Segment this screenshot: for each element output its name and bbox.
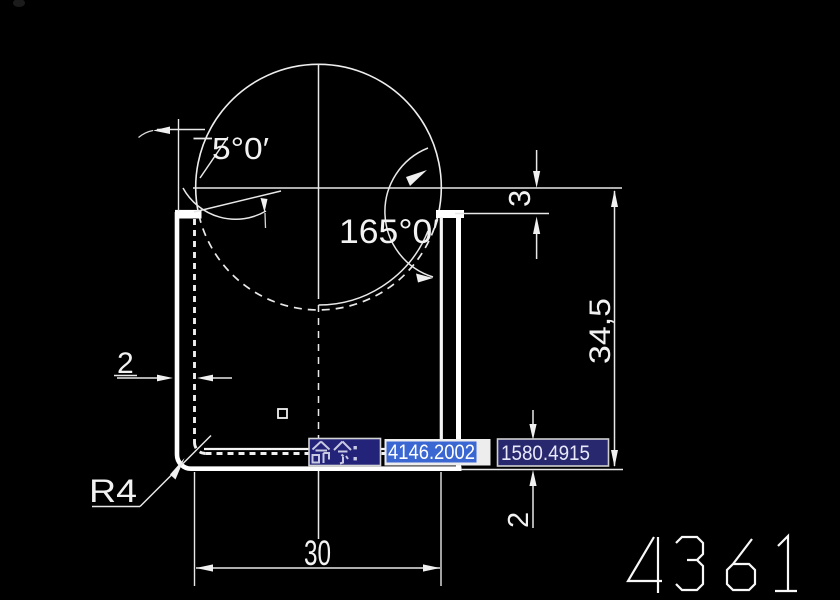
svg-text:3: 3 — [502, 190, 537, 207]
svg-text:1580.4915: 1580.4915 — [501, 442, 590, 465]
svg-text:165°0′: 165°0′ — [339, 213, 439, 251]
svg-text:30: 30 — [304, 534, 331, 573]
svg-text:R4: R4 — [89, 473, 137, 509]
svg-text:4146.2002: 4146.2002 — [388, 441, 475, 464]
svg-text:2: 2 — [503, 512, 535, 528]
svg-text:5°0′: 5°0′ — [212, 131, 269, 166]
svg-text:34,5: 34,5 — [584, 298, 617, 364]
